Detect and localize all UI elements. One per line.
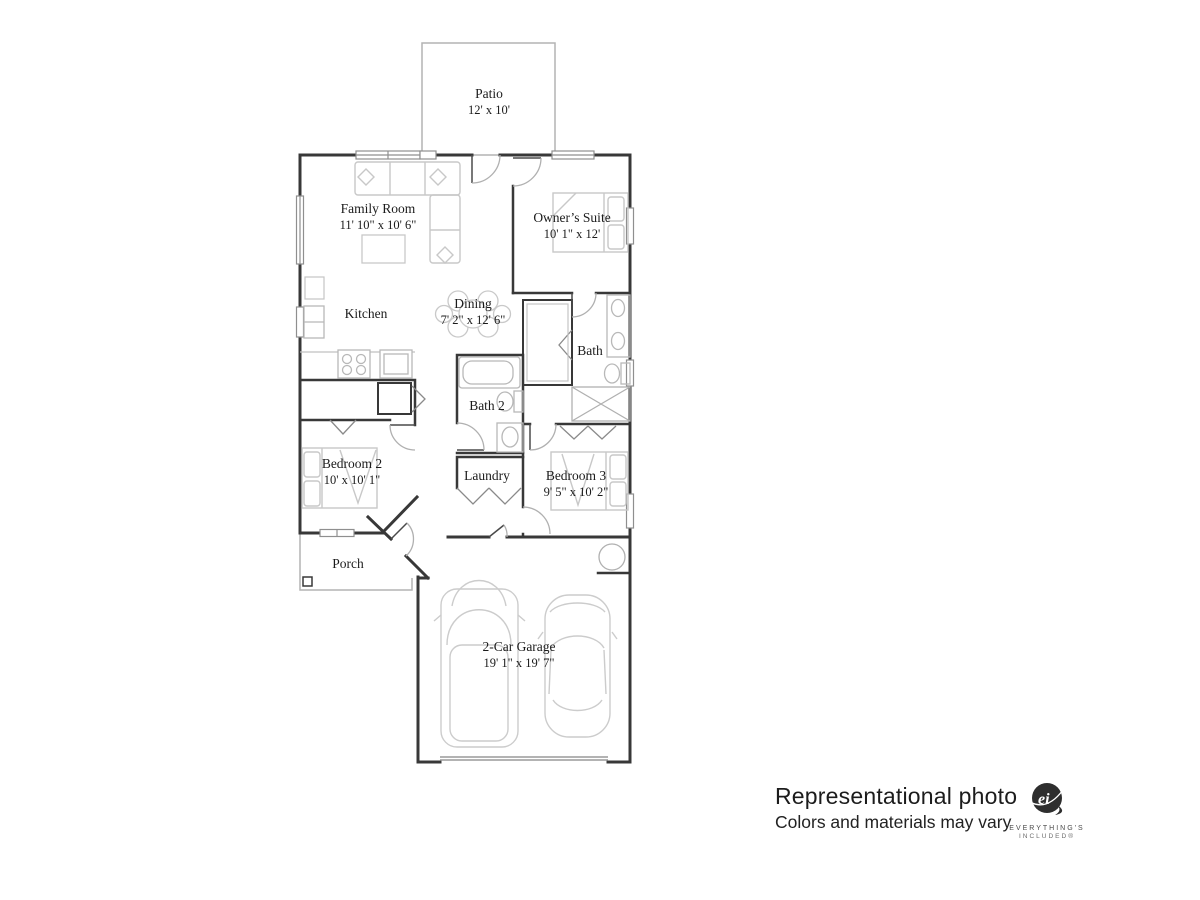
room-label-garage: 2-Car Garage 19' 1" x 19' 7" xyxy=(482,638,555,672)
bath-vanity xyxy=(607,295,630,357)
room-name: Laundry xyxy=(464,467,510,484)
kitchen-sink xyxy=(380,350,412,378)
room-label-family-room: Family Room 11' 10" x 10' 6" xyxy=(340,200,417,234)
room-label-laundry: Laundry xyxy=(464,467,510,484)
room-name: Bath xyxy=(577,342,603,359)
coffee-table xyxy=(362,235,405,263)
room-label-bath2: Bath 2 xyxy=(469,397,505,414)
floorplan-drawing xyxy=(0,0,1200,900)
disclaimer-line2: Colors and materials may vary xyxy=(775,812,1017,833)
room-name: Patio xyxy=(468,85,510,102)
bathtub xyxy=(459,357,520,388)
shower xyxy=(572,387,630,421)
stove xyxy=(338,350,370,378)
ei-globe-icon: ei xyxy=(1022,781,1072,819)
disclaimer: Representational photo Colors and materi… xyxy=(775,783,1017,833)
room-name: Kitchen xyxy=(345,305,388,322)
room-label-bedroom3: Bedroom 3 9' 5" x 10' 2" xyxy=(544,467,609,501)
logo-tagline2: INCLUDED® xyxy=(1008,833,1086,840)
room-label-owners-suite: Owner’s Suite 10' 1" x 12' xyxy=(533,209,610,243)
water-heater xyxy=(599,544,625,570)
bath2-sink xyxy=(497,423,523,452)
room-dims: 10' 1" x 12' xyxy=(533,226,610,243)
garage-door xyxy=(440,757,608,760)
room-dims: 7' 2" x 12' 6" xyxy=(441,312,506,329)
floorplan-page: Patio 12' x 10' Family Room 11' 10" x 10… xyxy=(0,0,1200,900)
room-label-bedroom2: Bedroom 2 10' x 10' 1" xyxy=(322,455,382,489)
room-label-bath: Bath xyxy=(577,342,603,359)
room-label-patio: Patio 12' x 10' xyxy=(468,85,510,119)
room-name: 2-Car Garage xyxy=(482,638,555,655)
refrigerator xyxy=(304,306,324,338)
room-name: Bedroom 2 xyxy=(322,455,382,472)
disclaimer-line1: Representational photo xyxy=(775,783,1017,810)
room-name: Owner’s Suite xyxy=(533,209,610,226)
porch-post xyxy=(303,577,312,586)
room-dims: 10' x 10' 1" xyxy=(322,472,382,489)
tv-console xyxy=(305,277,324,299)
room-name: Bath 2 xyxy=(469,397,505,414)
room-dims: 19' 1" x 19' 7" xyxy=(482,655,555,672)
room-dims: 12' x 10' xyxy=(468,102,510,119)
everythings-included-logo: ei EVERYTHING'S INCLUDED® xyxy=(1008,781,1086,840)
interior-walls xyxy=(300,186,630,573)
room-dims: 9' 5" x 10' 2" xyxy=(544,484,609,501)
room-name: Dining xyxy=(441,295,506,312)
room-dims: 11' 10" x 10' 6" xyxy=(340,217,417,234)
room-label-dining: Dining 7' 2" x 12' 6" xyxy=(441,295,506,329)
svg-text:ei: ei xyxy=(1038,791,1050,808)
room-label-kitchen: Kitchen xyxy=(345,305,388,322)
room-label-porch: Porch xyxy=(332,555,364,572)
room-name: Family Room xyxy=(340,200,417,217)
logo-tagline1: EVERYTHING'S xyxy=(1008,825,1086,832)
room-name: Porch xyxy=(332,555,364,572)
room-name: Bedroom 3 xyxy=(544,467,609,484)
